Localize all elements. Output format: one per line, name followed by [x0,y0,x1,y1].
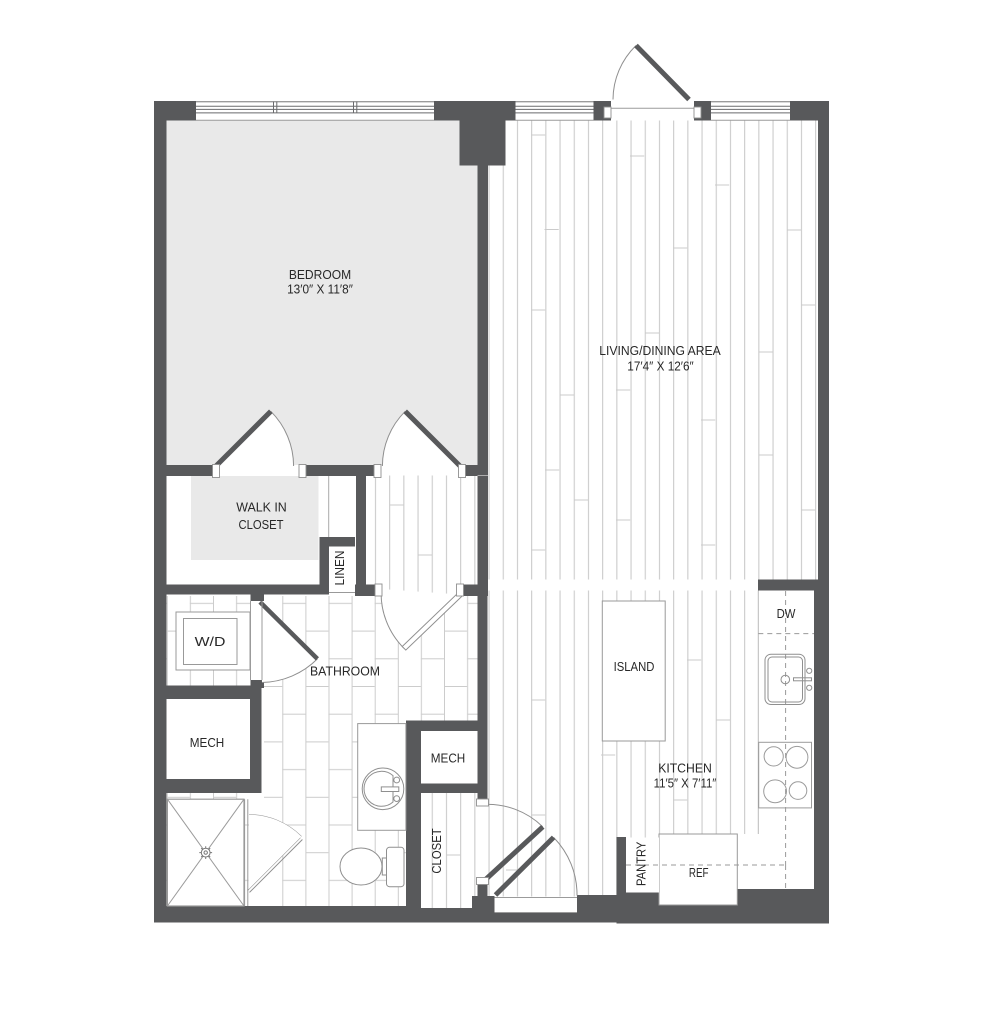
svg-text:BEDROOM: BEDROOM [289,268,351,282]
svg-text:11′5″ X 7′11″: 11′5″ X 7′11″ [654,777,717,791]
svg-text:ISLAND: ISLAND [614,660,655,674]
svg-text:LINEN: LINEN [333,551,347,586]
svg-text:PANTRY: PANTRY [635,841,649,886]
svg-text:17′4″ X 12′6″: 17′4″ X 12′6″ [627,360,694,374]
svg-text:MECH: MECH [431,752,466,766]
svg-text:DW: DW [777,607,796,621]
svg-text:W/D: W/D [195,635,226,649]
svg-text:13′0″ X 11′8″: 13′0″ X 11′8″ [287,283,353,297]
svg-text:CLOSET: CLOSET [239,518,284,532]
svg-text:WALK IN: WALK IN [236,501,287,515]
svg-text:LIVING/DINING AREA: LIVING/DINING AREA [599,344,721,358]
svg-text:BATHROOM: BATHROOM [310,665,380,679]
svg-text:CLOSET: CLOSET [430,828,444,874]
svg-text:REF: REF [689,866,709,880]
svg-text:KITCHEN: KITCHEN [658,762,712,776]
svg-text:MECH: MECH [190,736,225,750]
